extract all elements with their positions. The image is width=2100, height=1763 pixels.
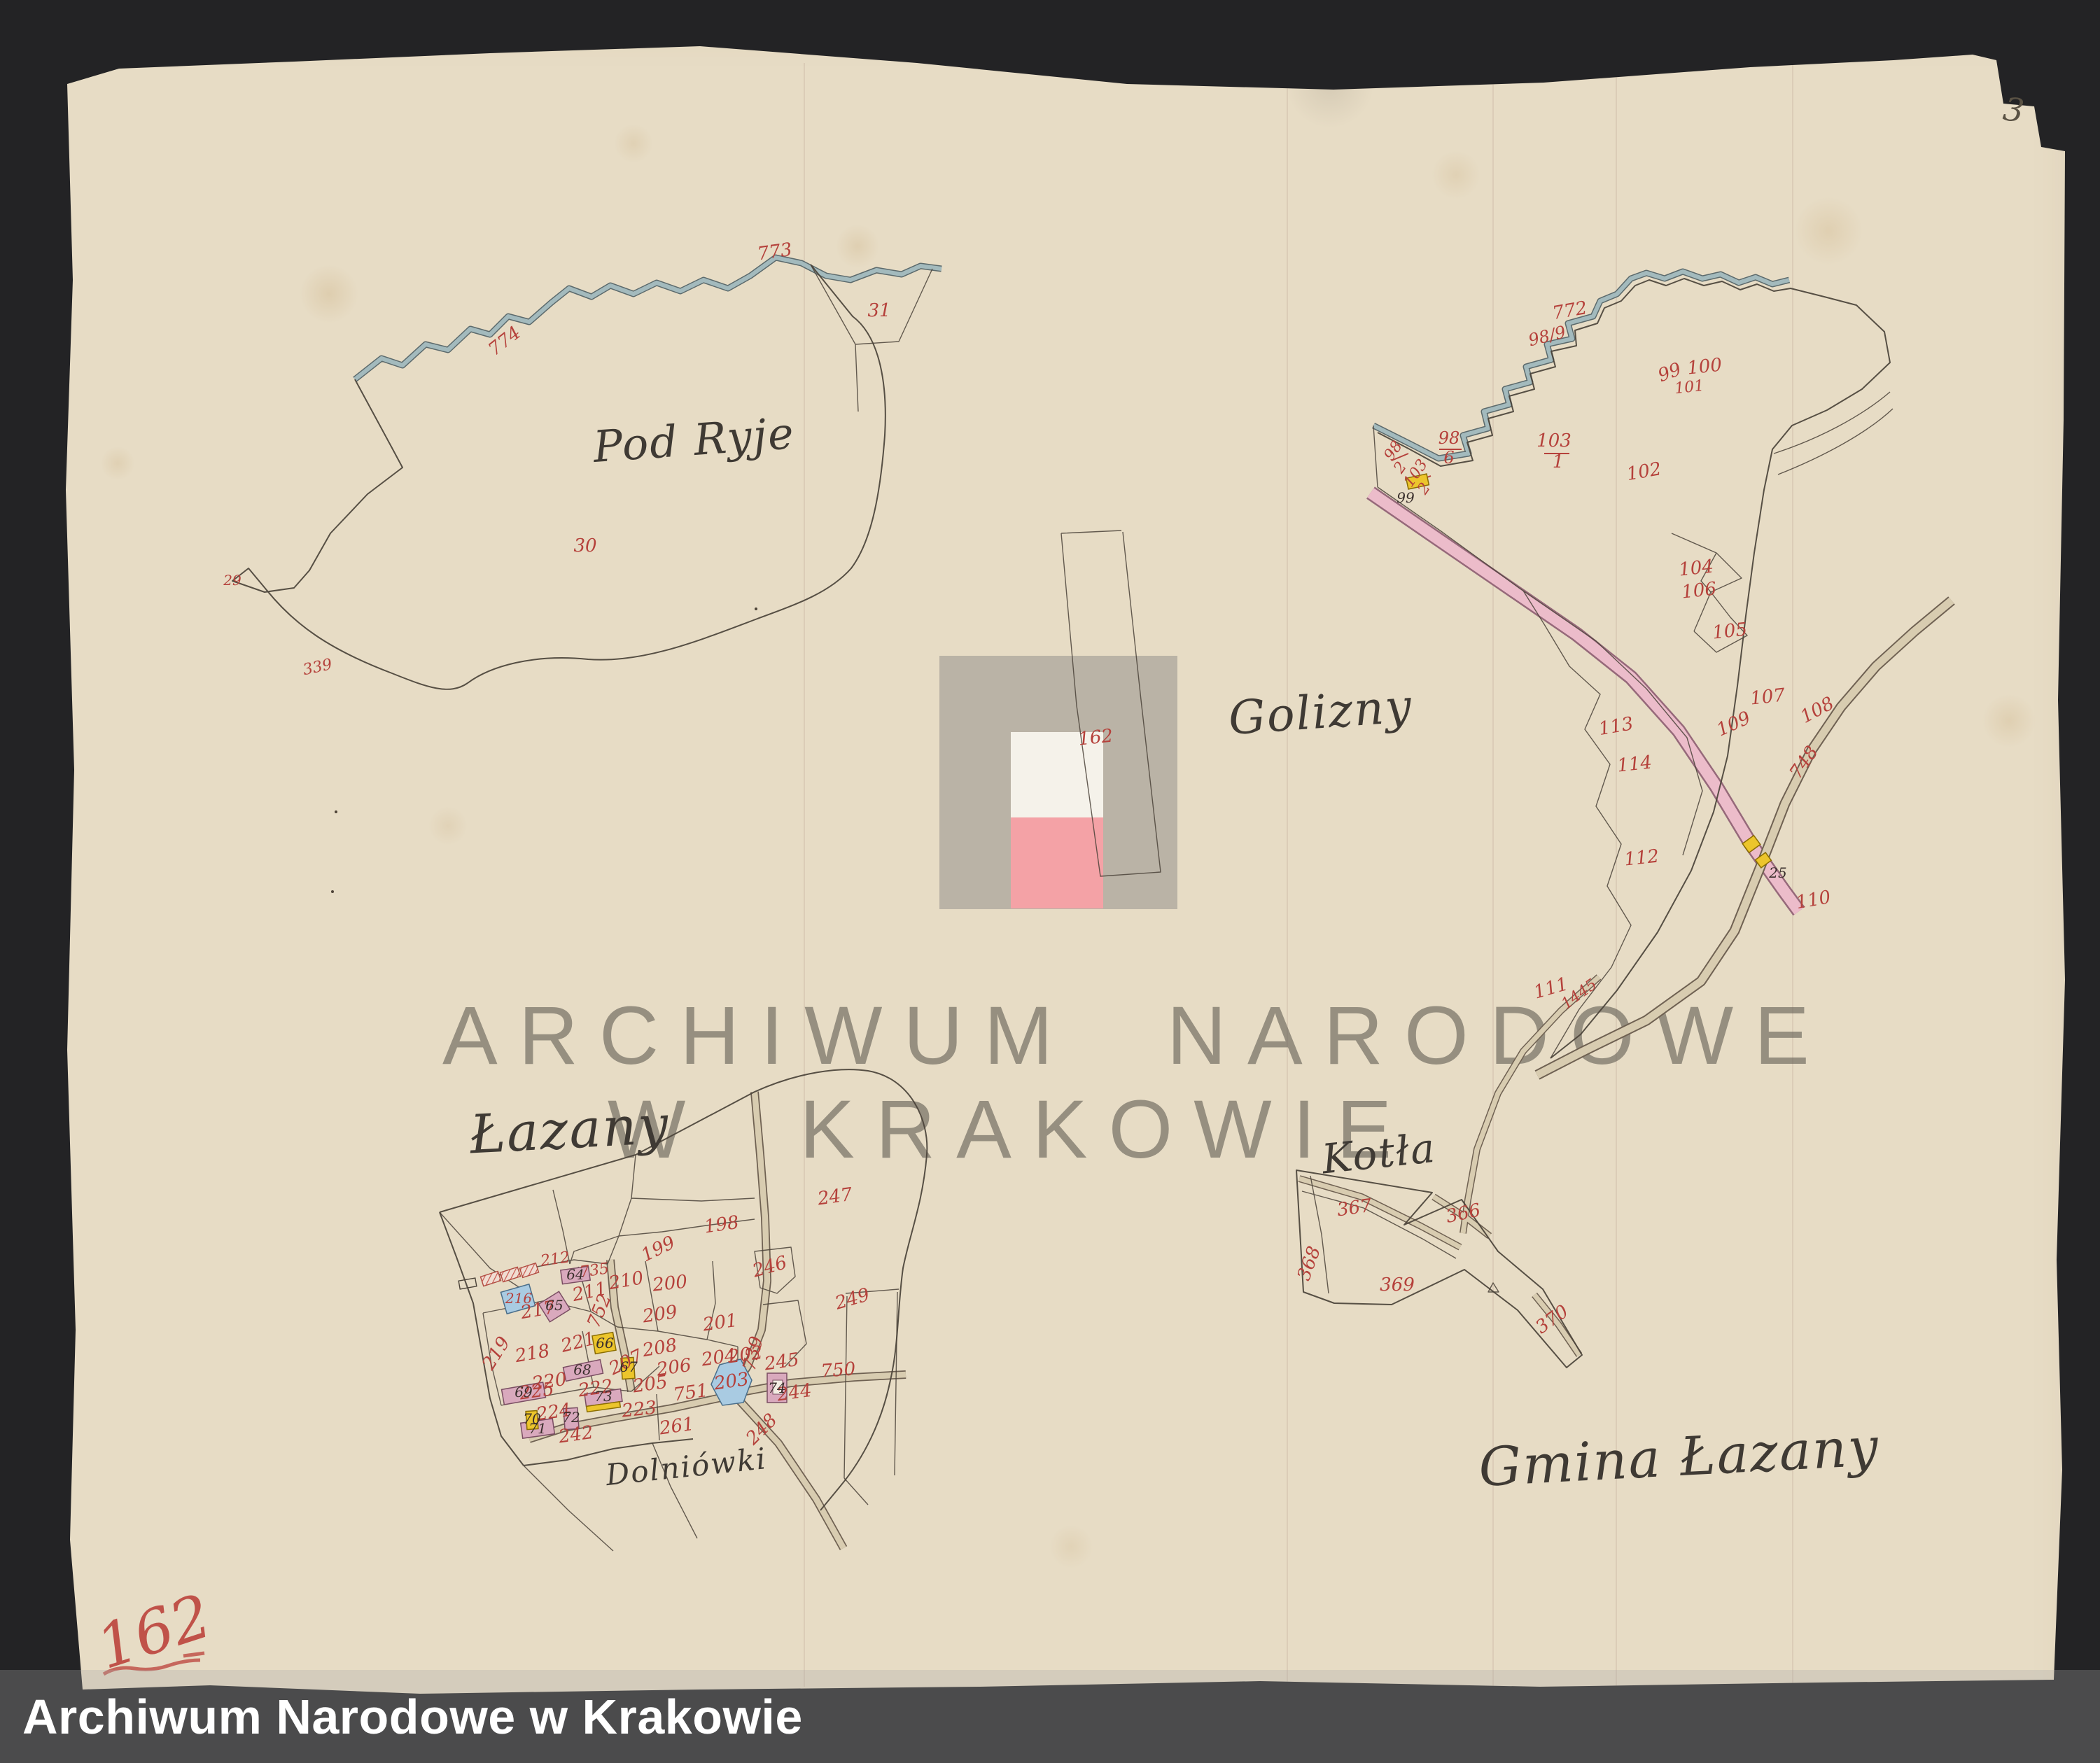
building-hatched	[500, 1267, 520, 1281]
parcel-number: 69	[514, 1384, 533, 1400]
parcel-number: 209	[640, 1302, 678, 1328]
scanned-map-page: ARCHIWUM NARODOWE W KRAKOWIE	[0, 0, 2100, 1763]
cadastral-drawing: Pod Ryje Golizny Łazany Kotła Gmina Łaza…	[0, 0, 2100, 1763]
parcel-number: 114	[1616, 752, 1653, 777]
parcel-number: 223	[620, 1398, 657, 1422]
parcel-number: 71	[528, 1420, 546, 1437]
parcel-number: 245	[762, 1349, 800, 1375]
parcel-number: 109	[1714, 708, 1754, 741]
parcel-number: 199	[638, 1232, 679, 1266]
survey-triangle	[1488, 1283, 1499, 1292]
pod-ryje-region	[232, 258, 941, 689]
parcel-number: 106	[1681, 579, 1718, 603]
parcel-number: 102	[1625, 458, 1663, 485]
parcel-number: 261	[657, 1414, 695, 1440]
parcel-number: 201	[701, 1310, 738, 1336]
parcel-number: 101	[1674, 377, 1704, 398]
parcel-number: 110	[1795, 887, 1833, 913]
parcel-number: 73	[594, 1388, 612, 1405]
parcel-number: 100	[1686, 355, 1723, 379]
parcel-number: 74	[768, 1379, 785, 1396]
archive-caption-text: Archiwum Narodowe w Krakowie	[22, 1689, 803, 1745]
region-title-golizny: Golizny	[1226, 679, 1414, 745]
parcel-number: 218	[513, 1340, 552, 1367]
parcel-number: 98	[1438, 428, 1460, 448]
parcel-number: 1	[1553, 451, 1564, 472]
parcel-number: 25	[1768, 864, 1786, 881]
parcel-number: 339	[302, 656, 334, 679]
parcel-number: 113	[1597, 713, 1635, 740]
parcel-number: 198	[703, 1212, 740, 1238]
parcel-numbers: 77377431302933916277298/9986982103299103…	[223, 239, 1837, 1449]
parcel-number: 249	[832, 1284, 872, 1314]
building-hatched	[519, 1263, 538, 1278]
region-title-kotla: Kotła	[1319, 1124, 1438, 1183]
parcel-number: 219	[478, 1333, 514, 1375]
golizny-boundary	[1378, 279, 1890, 1058]
region-title-pod-ryje: Pod Ryje	[591, 407, 797, 472]
building-hatched	[480, 1271, 500, 1286]
parcel-number: 104	[1678, 556, 1715, 581]
parcel-number: 30	[573, 535, 596, 556]
pod-ryje-boundary	[232, 265, 885, 689]
parcel-162-strip	[1061, 531, 1161, 876]
parcel-number: 29	[223, 572, 241, 589]
parcel-number: 99	[1396, 489, 1415, 506]
parcel-number: 205	[631, 1372, 668, 1398]
parcel-number: 162	[1077, 726, 1114, 750]
parcel-number: 369	[1380, 1274, 1415, 1295]
parcel-number: 750	[820, 1358, 857, 1382]
parcel-number: 112	[1623, 846, 1660, 871]
parcel-number: 103	[1536, 430, 1571, 451]
parcel-number: 31	[867, 300, 890, 321]
parcel-number: 6	[1443, 448, 1454, 468]
parcel-number: 67	[619, 1358, 638, 1375]
parcel-number: 107	[1749, 684, 1786, 709]
parcel-number: 72	[562, 1409, 580, 1426]
parcel-number: 368	[1294, 1244, 1325, 1284]
parcel-number: 200	[651, 1272, 688, 1296]
region-title-lazany: Łazany	[468, 1093, 671, 1166]
parcel-number: 98/9	[1527, 322, 1568, 350]
region-title-dolniowki: Dolniówki	[603, 1441, 769, 1492]
building-outline	[458, 1278, 477, 1289]
parcel-number: 774	[484, 323, 525, 360]
stream-outline	[355, 258, 941, 379]
archive-caption-bar: Archiwum Narodowe w Krakowie	[0, 1670, 2100, 1763]
parcel-number: 367	[1336, 1195, 1373, 1221]
parcel-number: 64	[566, 1266, 584, 1283]
parcel-number: 65	[545, 1297, 563, 1314]
region-title-gmina: Gmina Łazany	[1477, 1415, 1881, 1498]
parcel-number: 221	[558, 1328, 597, 1357]
parcel-number: 220	[530, 1369, 568, 1395]
parcel-number: 242	[556, 1422, 594, 1448]
parcel-number: 68	[573, 1361, 591, 1378]
parcel-number: 66	[596, 1335, 614, 1351]
parcel-number: 247	[815, 1184, 854, 1210]
golizny-region	[1371, 272, 1952, 1075]
parcel-number: 105	[1711, 619, 1749, 644]
